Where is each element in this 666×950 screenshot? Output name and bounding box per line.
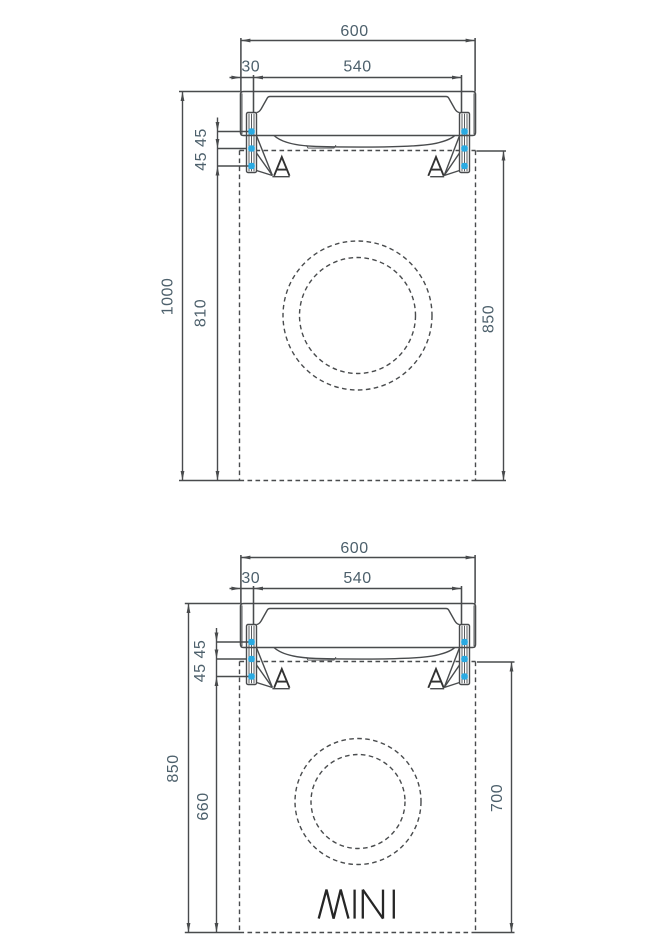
svg-text:810: 810 [193, 299, 210, 327]
svg-text:850: 850 [480, 305, 497, 333]
svg-text:850: 850 [165, 754, 182, 782]
svg-text:660: 660 [195, 792, 212, 820]
svg-text:30: 30 [241, 58, 260, 75]
svg-text:45 45: 45 45 [192, 640, 209, 683]
svg-text:600: 600 [340, 23, 368, 40]
svg-text:30: 30 [241, 570, 260, 587]
svg-text:1000: 1000 [159, 278, 176, 316]
svg-text:45 45: 45 45 [193, 128, 210, 171]
svg-text:540: 540 [343, 58, 371, 75]
svg-text:540: 540 [343, 570, 371, 587]
svg-text:600: 600 [340, 540, 368, 557]
svg-text:700: 700 [489, 784, 506, 812]
